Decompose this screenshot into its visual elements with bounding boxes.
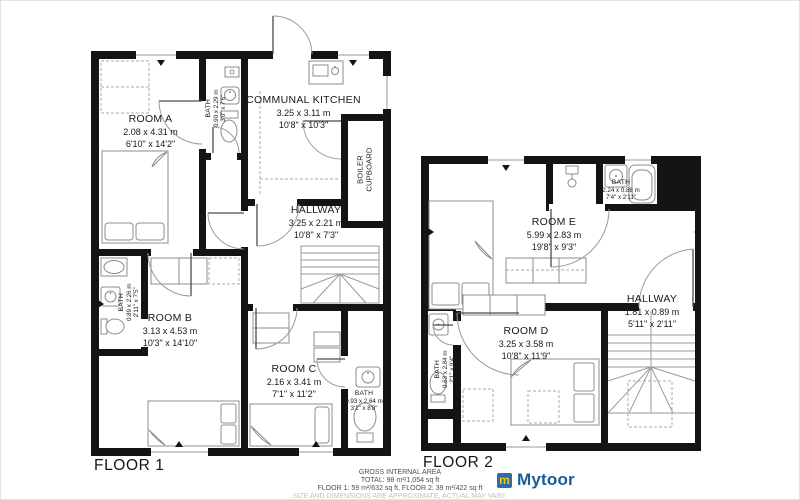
bath-c-label: BATH 0.93 x 2.64 m 3'1" x 8'8" xyxy=(332,390,396,413)
closet xyxy=(463,295,545,315)
mytoor-logo-text: Mytoor xyxy=(517,470,575,490)
room-size-imperial: 3'0" x 7'6" xyxy=(220,73,228,143)
room-size-imperial: 3'1" x 8'8" xyxy=(332,405,396,413)
room-name: HALLWAY xyxy=(261,205,371,217)
bed xyxy=(250,404,332,446)
footer-area-summary: GROSS INTERNAL AREA TOTAL: 98 m²/1,054 s… xyxy=(1,469,799,500)
bath-b-label: BATH 0.89 x 2.26 m 2'11" x 7'5" xyxy=(118,267,141,337)
bed xyxy=(511,359,599,425)
room-size-imperial: 5'11" x 2'11" xyxy=(604,319,700,331)
room-size-metric: 3.25 x 3.11 m xyxy=(246,108,361,120)
room-size-imperial: 10'8" x 7'3" xyxy=(261,230,371,242)
hallway2-label: HALLWAY 1.81 x 0.89 m 5'11" x 2'11" xyxy=(604,294,700,331)
room-name: ROOM A xyxy=(93,114,208,126)
room-size-imperial: 10'8" x 10'3" xyxy=(246,120,361,132)
room-size-imperial: 2'11" x 7'5" xyxy=(133,267,141,337)
room-name: BATH xyxy=(118,267,126,337)
floorplan-page: ROOM A 2.08 x 4.31 m 6'10" x 14'2" BATH … xyxy=(0,0,800,500)
room-size-metric: 2.24 x 0.88 m xyxy=(587,187,655,195)
room-size-metric: 5.99 x 2.83 m xyxy=(496,230,612,242)
mytoor-logo-icon: m xyxy=(497,473,512,488)
room-name: BATH xyxy=(332,390,396,398)
room-size-imperial: 19'8" x 9'3" xyxy=(496,242,612,254)
bath-a-label: BATH 0.90 x 2.29 m 3'0" x 7'6" xyxy=(205,73,228,143)
room-size-metric: 0.93 x 2.64 m xyxy=(332,398,396,406)
room-name: HALLWAY xyxy=(604,294,700,306)
sink-icon xyxy=(356,367,380,387)
bed xyxy=(429,201,493,309)
room-d-label: ROOM D 3.25 x 3.58 m 10'8" x 11'9" xyxy=(469,326,583,363)
room-e-label: ROOM E 5.99 x 2.83 m 19'8" x 9'3" xyxy=(496,217,612,254)
room-name: BATH xyxy=(587,179,655,187)
disclaimer-text: SIZE AND DIMENSIONS ARE APPROXIMATE, ACT… xyxy=(1,493,799,500)
room-size-imperial: 7'1" x 11'2" xyxy=(244,389,344,401)
room-size-imperial: 2'1" x 9'4" xyxy=(449,334,457,404)
bath-e-label: BATH 2.24 x 0.88 m 7'4" x 2'11" xyxy=(587,179,655,202)
kitchen-label: COMMUNAL KITCHEN 3.25 x 3.11 m 10'8" x 1… xyxy=(246,95,361,132)
dresser xyxy=(506,258,586,283)
gross-internal-area-heading: GROSS INTERNAL AREA xyxy=(1,469,799,477)
room-name: ROOM C xyxy=(244,364,344,376)
room-name: ROOM E xyxy=(496,217,612,229)
boiler-cupboard-label: BOILER CUPBOARD xyxy=(357,146,374,194)
room-size-imperial: 10'3" x 14'10" xyxy=(111,338,229,350)
bed xyxy=(148,401,239,446)
room-size-metric: 1.81 x 0.89 m xyxy=(604,307,700,319)
bath-d-label: BATH 0.63 x 2.84 m 2'1" x 9'4" xyxy=(434,334,457,404)
bed xyxy=(102,151,168,243)
room-name: BATH xyxy=(434,334,442,404)
room-size-metric: 3.25 x 2.21 m xyxy=(261,218,371,230)
room-size-imperial: 10'8" x 11'9" xyxy=(469,351,583,363)
room-name: ROOM D xyxy=(469,326,583,338)
room-name: BOILER CUPBOARD xyxy=(357,146,374,194)
floorplan-canvas xyxy=(1,1,800,500)
hallway1-label: HALLWAY 3.25 x 2.21 m 10'8" x 7'3" xyxy=(261,205,371,242)
room-c-label: ROOM C 2.16 x 3.41 m 7'1" x 11'2" xyxy=(244,364,344,401)
total-area-text: TOTAL: 98 m²/1,054 sq ft xyxy=(1,477,799,485)
room-size-metric: 0.90 x 2.29 m xyxy=(212,73,220,143)
room-size-imperial: 7'4" x 2'11" xyxy=(587,194,655,202)
room-size-metric: 2.16 x 3.41 m xyxy=(244,377,344,389)
room-a-label: ROOM A 2.08 x 4.31 m 6'10" x 14'2" xyxy=(93,114,208,151)
room-size-metric: 3.25 x 3.58 m xyxy=(469,339,583,351)
room-size-metric: 0.63 x 2.84 m xyxy=(441,334,449,404)
floor-areas-text: FLOOR 1: 59 m²/632 sq ft, FLOOR 2: 39 m²… xyxy=(1,485,799,493)
kitchen-sink-icon xyxy=(309,61,343,84)
brand-logo: m Mytoor xyxy=(497,470,575,490)
room-name: COMMUNAL KITCHEN xyxy=(246,95,361,107)
room-size-imperial: 6'10" x 14'2" xyxy=(93,139,208,151)
room-size-metric: 0.89 x 2.26 m xyxy=(125,267,133,337)
room-name: BATH xyxy=(205,73,213,143)
room-size-metric: 2.08 x 4.31 m xyxy=(93,127,208,139)
